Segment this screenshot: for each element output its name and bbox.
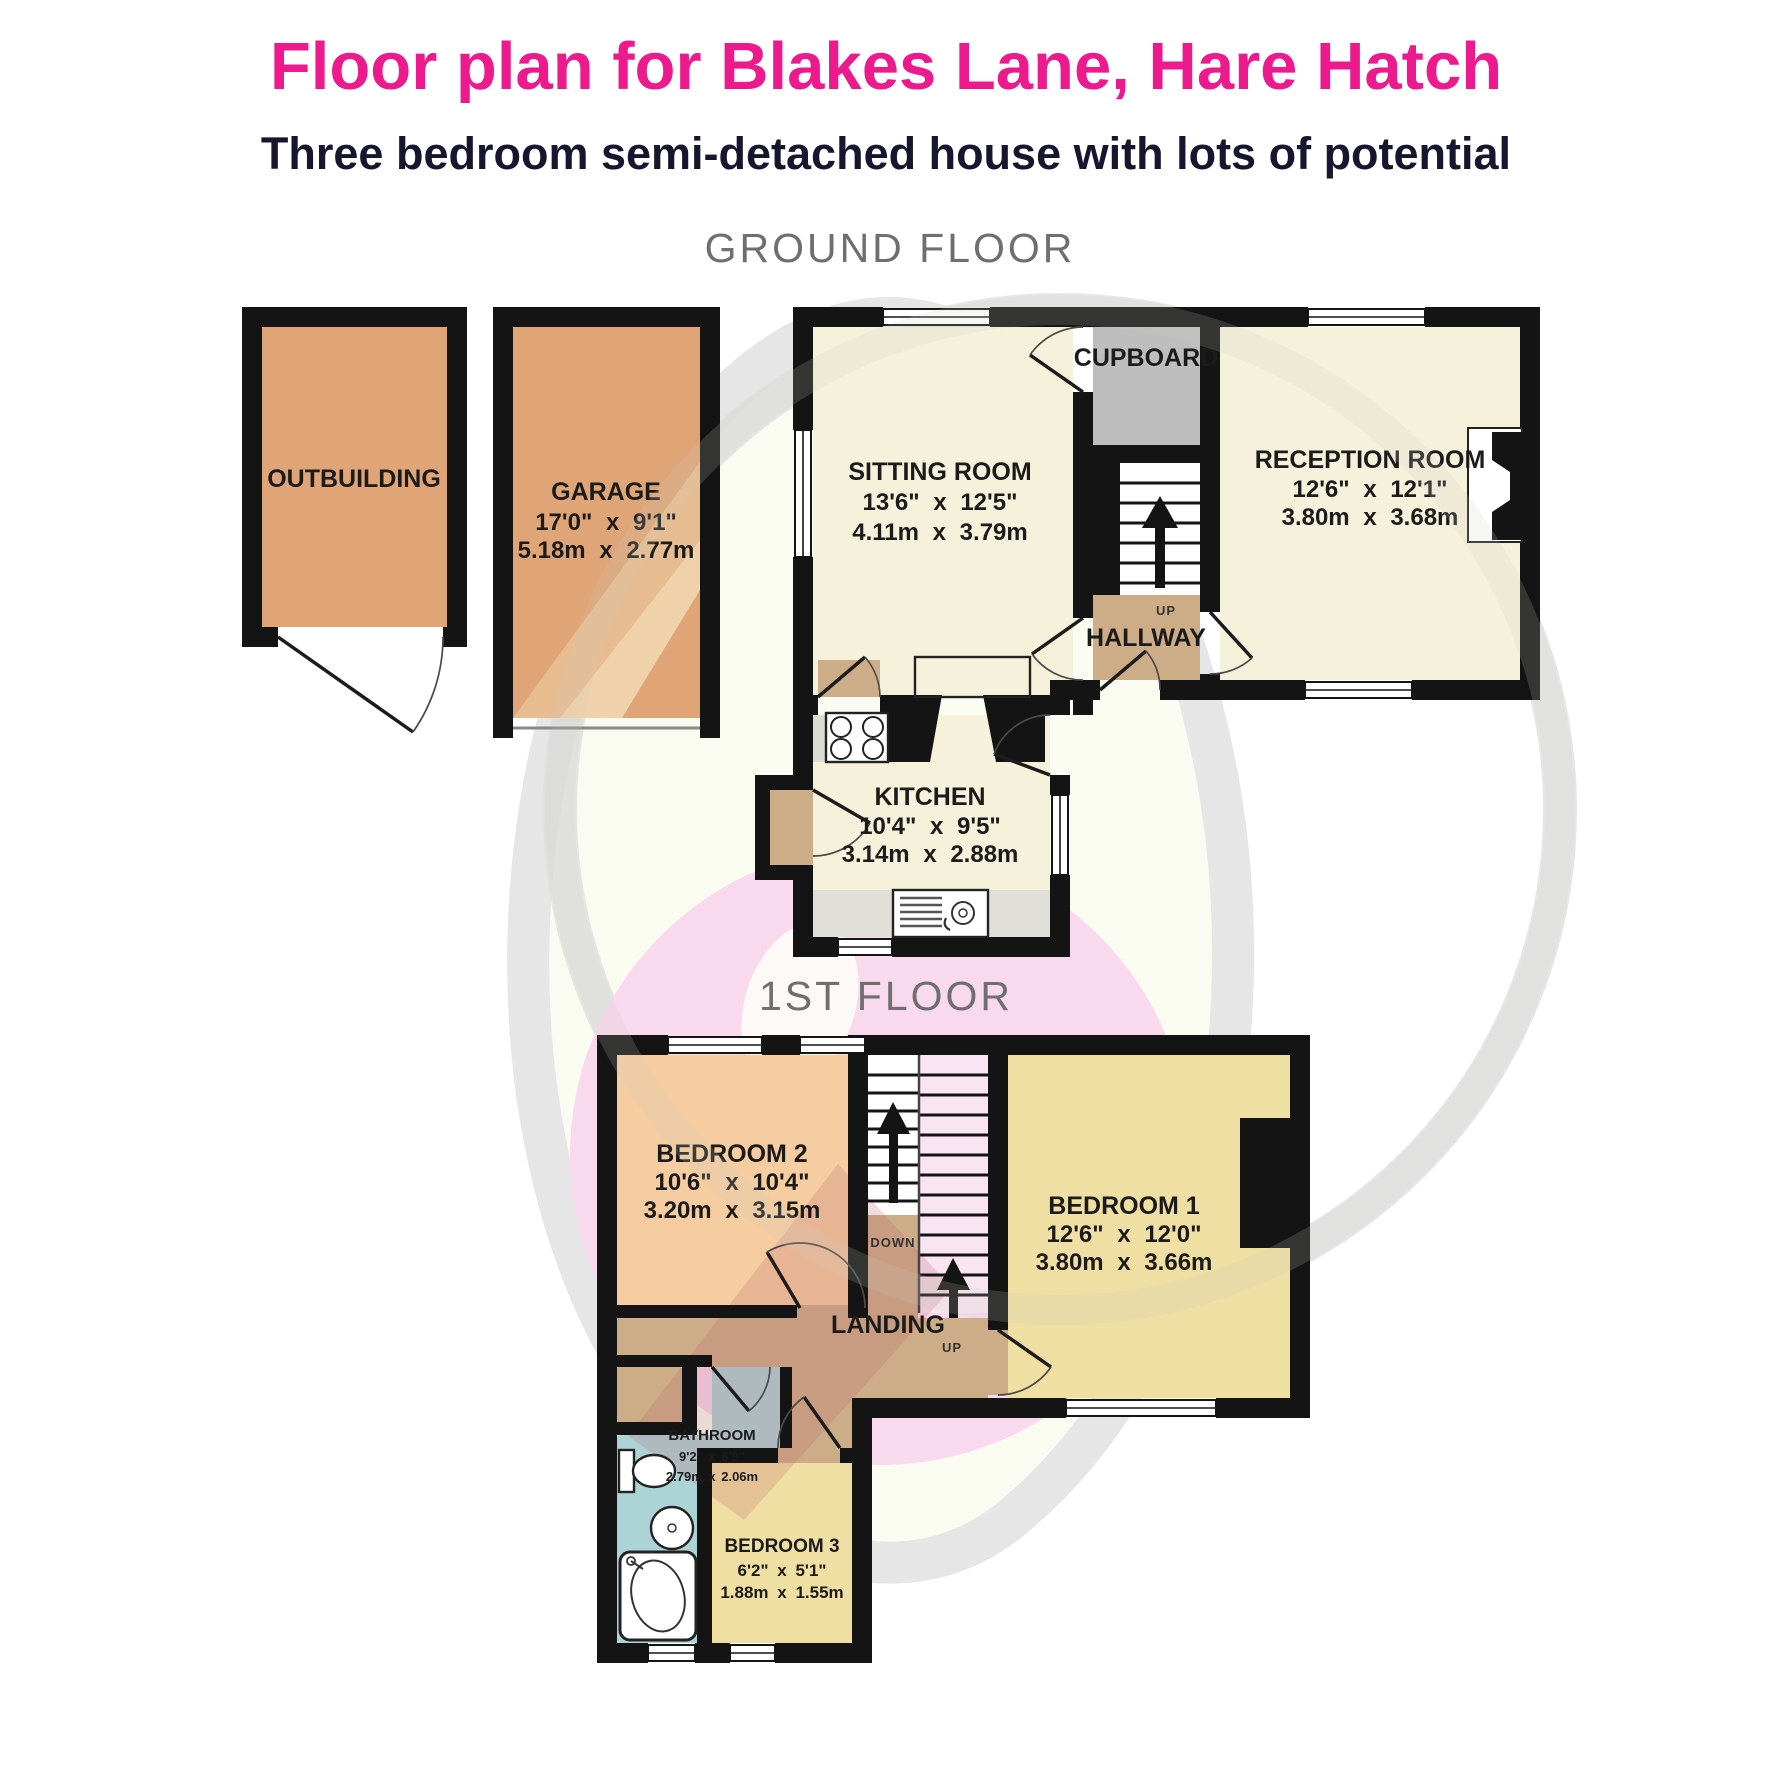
bedroom3-metric: 1.88m x 1.55m	[720, 1583, 843, 1602]
wall	[793, 557, 813, 775]
window	[648, 1645, 695, 1661]
bathroom-metric: 2.79m x 2.06m	[666, 1469, 758, 1484]
stair-arrow	[889, 1128, 898, 1203]
reception-room-label: RECEPTION ROOM	[1255, 446, 1486, 474]
ground-stairs-up-label: UP	[1156, 603, 1176, 618]
bedroom3-imperial: 6'2" x 5'1"	[738, 1561, 827, 1580]
ground-floor-heading: GROUND FLOOR	[705, 225, 1076, 271]
kitchen-label: KITCHEN	[874, 783, 985, 811]
wall	[242, 627, 278, 647]
door	[278, 637, 443, 732]
wall	[852, 1418, 872, 1663]
wall	[755, 775, 770, 880]
wall	[1290, 1035, 1310, 1418]
kitchen-hob	[826, 713, 888, 762]
garage-label: GARAGE	[551, 478, 661, 506]
wall	[597, 1035, 617, 1663]
wall	[1200, 674, 1220, 700]
wall	[775, 1643, 872, 1663]
wall	[852, 1398, 1066, 1418]
stairs-down-label: DOWN	[870, 1235, 915, 1250]
first-floor-heading: 1ST FLOOR	[759, 973, 1013, 1019]
wall	[840, 1448, 852, 1463]
window	[1052, 795, 1068, 875]
basin	[651, 1507, 693, 1549]
cupboard-label: CUPBOARD	[1074, 344, 1218, 372]
floorplan-drawing: OUTBUILDING GARAGE 17'0" x 9'1" 5.18m x …	[0, 0, 1772, 1772]
wall	[700, 718, 720, 738]
window	[795, 430, 811, 557]
wall	[493, 307, 513, 738]
wall	[597, 1643, 648, 1663]
wall	[988, 1035, 1008, 1330]
bedroom1-metric: 3.80m x 3.66m	[1036, 1249, 1213, 1276]
window	[1066, 1400, 1216, 1416]
kitchen-imperial: 10'4" x 9'5"	[859, 813, 1001, 840]
wall	[892, 937, 1070, 957]
wall	[597, 1305, 797, 1318]
wall	[607, 1355, 712, 1367]
wall	[780, 1367, 792, 1448]
wall	[1050, 875, 1070, 937]
kitchen-metric: 3.14m x 2.88m	[842, 841, 1019, 868]
kitchen-sink	[893, 890, 988, 937]
wall	[242, 307, 467, 327]
hallway-label: HALLWAY	[1086, 624, 1206, 652]
wall	[1093, 463, 1120, 595]
bedroom1-chimney	[1240, 1118, 1290, 1248]
window	[1305, 682, 1412, 698]
wall	[1050, 775, 1070, 795]
stair-arrow	[1155, 520, 1165, 588]
wall	[493, 307, 720, 327]
bathroom-imperial: 9'2" x 6'9"	[679, 1449, 745, 1464]
window	[838, 939, 892, 955]
bedroom1-door-gap	[988, 1330, 1008, 1395]
wall	[700, 307, 720, 738]
wall	[793, 937, 838, 957]
window	[800, 1037, 865, 1053]
wall	[1216, 1398, 1310, 1418]
sitting-room-imperial: 13'6" x 12'5"	[863, 489, 1018, 516]
bedroom1-imperial: 12'6" x 12'0"	[1047, 1221, 1202, 1248]
wall	[762, 1035, 800, 1055]
outbuilding-label: OUTBUILDING	[267, 465, 441, 493]
wall	[493, 718, 513, 738]
wall	[1073, 392, 1093, 618]
sitting-room-label: SITTING ROOM	[848, 458, 1031, 486]
wall	[443, 627, 467, 647]
bathtub	[620, 1552, 696, 1640]
wall	[447, 307, 467, 647]
floorplan-page: Floor plan for Blakes Lane, Hare Hatch T…	[0, 0, 1772, 1772]
sitting-room-metric: 4.11m x 3.79m	[852, 519, 1027, 546]
bathroom-label: BATHROOM	[668, 1427, 755, 1444]
bedroom1-label: BEDROOM 1	[1048, 1192, 1200, 1220]
landing-label: LANDING	[831, 1311, 945, 1339]
reception-room-metric: 3.80m x 3.68m	[1282, 504, 1459, 531]
bedroom3-label: BEDROOM 3	[724, 1536, 839, 1557]
wall	[793, 695, 818, 715]
window	[668, 1037, 762, 1053]
window	[730, 1645, 775, 1661]
wall	[1073, 680, 1093, 715]
wall	[1220, 680, 1305, 700]
window	[1308, 309, 1425, 325]
kitchen-porch-floor	[770, 790, 813, 865]
wall	[865, 1035, 1310, 1055]
garage-metric: 5.18m x 2.77m	[518, 537, 695, 564]
wall	[242, 307, 262, 647]
stairs-up-label: UP	[942, 1340, 962, 1355]
wall	[695, 1643, 730, 1663]
